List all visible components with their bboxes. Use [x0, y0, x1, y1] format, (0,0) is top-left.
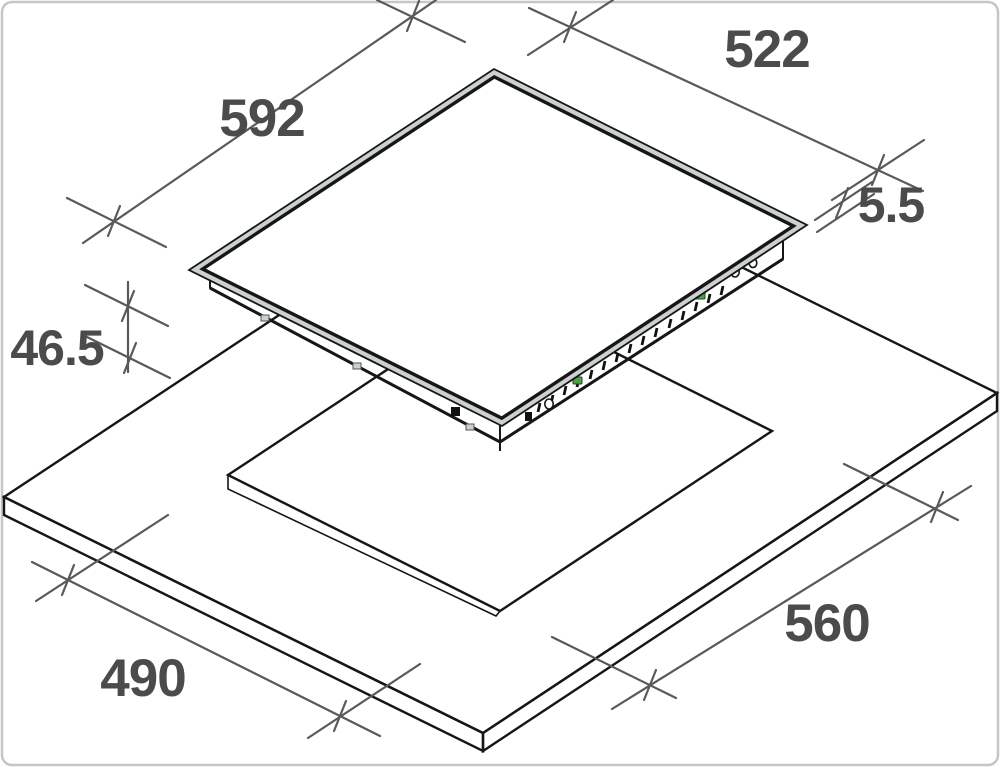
mounting-clip-black: [525, 412, 532, 421]
dimension-label-490: 490: [100, 649, 185, 708]
technical-drawing-page: 490 560: [0, 0, 1000, 767]
dimension-label-46.5: 46.5: [10, 320, 104, 376]
dimension-label-560: 560: [784, 594, 869, 653]
mounting-clip-black: [451, 407, 460, 416]
dimension-label-522: 522: [724, 20, 809, 79]
dimension-label-592: 592: [219, 89, 304, 148]
dimension-label-5.5: 5.5: [858, 177, 925, 233]
cooktop-dimension-diagram: 490 560: [0, 0, 1000, 767]
